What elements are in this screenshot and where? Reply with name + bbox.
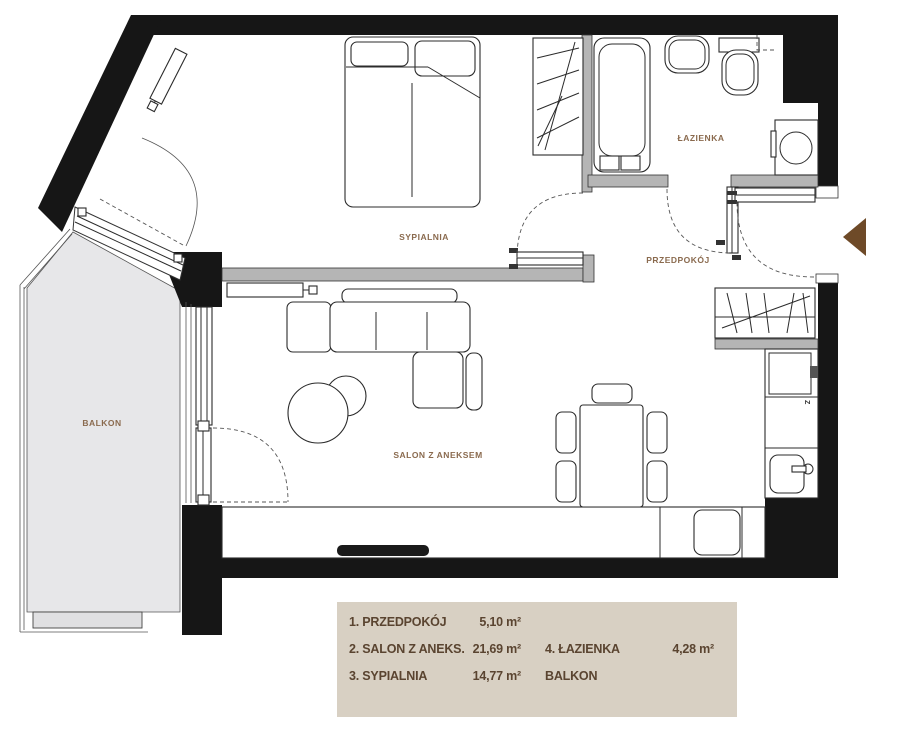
legend-item-label: 1. PRZEDPOKÓJ — [349, 613, 446, 631]
legend-panel: 1. PRZEDPOKÓJ 5,10 m² 2. SALON Z ANEKS. … — [337, 602, 737, 717]
sofa-module — [287, 302, 331, 352]
balcony — [20, 229, 180, 632]
door-swing-arc — [213, 428, 288, 502]
door-stop — [509, 264, 518, 269]
entrance-door — [727, 188, 815, 277]
door-stop — [727, 191, 737, 195]
wall-right-upper — [818, 35, 838, 197]
door-swing-arc — [737, 202, 814, 277]
bedroom-wardrobe — [533, 38, 583, 155]
dining-chair — [556, 461, 576, 502]
entrance-jamb-top — [816, 186, 838, 198]
wall-bedroom-door-jamb — [583, 255, 594, 282]
sofa-armrest — [466, 353, 482, 410]
door-stop — [732, 255, 741, 260]
door-hinge-block — [78, 208, 86, 216]
washbasin — [665, 36, 709, 73]
dining-set — [556, 384, 667, 507]
dining-chair — [647, 461, 667, 502]
radiator — [227, 283, 317, 297]
dining-table — [580, 405, 643, 507]
wall-hall-kitchen — [715, 339, 818, 349]
bedroom-door — [509, 193, 583, 269]
door-hinge-block — [174, 254, 182, 262]
dining-chair — [647, 412, 667, 453]
media-sideboard — [222, 507, 765, 558]
bathroom-door — [667, 187, 741, 260]
legend-item-label: BALKON — [545, 667, 597, 685]
coffee-table-large — [288, 383, 348, 443]
dining-chair — [556, 412, 576, 453]
pillow — [351, 42, 408, 66]
door-hinge-block — [198, 495, 209, 505]
door-stop — [509, 248, 518, 253]
entrance-arrow-icon — [843, 218, 866, 256]
cooktop — [694, 510, 740, 555]
floor-plan: Z SYPIALNIA SALON Z ANEKSEM ŁAZIENKA PRZ… — [0, 0, 902, 735]
bathtub — [594, 38, 650, 172]
cabinet-handle — [810, 366, 818, 378]
sofa-backrest — [342, 289, 457, 303]
hallway-wardrobe — [715, 288, 815, 338]
toilet — [719, 38, 759, 95]
living-room — [222, 283, 765, 558]
kitchen-counter: Z — [765, 349, 818, 498]
entrance-jamb-bottom — [816, 274, 838, 283]
pillow — [415, 41, 475, 76]
wall-bottom — [222, 558, 838, 578]
room-label-living: SALON Z ANEKSEM — [393, 450, 482, 460]
legend-item-label: 4. ŁAZIENKA — [545, 640, 620, 658]
legend-item-area: 5,10 m² — [445, 613, 521, 631]
legend-item-area: 4,28 m² — [637, 640, 714, 658]
wall-bathroom-hall-left — [588, 175, 668, 187]
tv — [337, 545, 429, 556]
room-label-bathroom: ŁAZIENKA — [678, 133, 725, 143]
bottom-counter — [222, 507, 765, 558]
door-stop — [716, 240, 725, 245]
door-hinge-block — [198, 421, 209, 431]
window — [196, 307, 212, 425]
wall-living-bedroom — [222, 268, 583, 281]
legend-item-area: 21,69 m² — [445, 640, 521, 658]
sofa-seat — [330, 302, 470, 352]
diagonal-radiator — [145, 48, 187, 113]
room-label-bedroom: SYPIALNIA — [399, 232, 449, 242]
wall-west-lower-block — [182, 505, 222, 635]
legend-item-label: 3. SYPIALNIA — [349, 667, 427, 685]
sofa-chaise — [413, 352, 463, 408]
legend-item-area: 14,77 m² — [445, 667, 521, 685]
wall-bathroom-hall-right — [731, 175, 818, 187]
room-label-hallway: PRZEDPOKÓJ — [646, 254, 710, 265]
door-stop — [727, 200, 737, 204]
balcony-planter — [33, 612, 142, 628]
bedroom — [145, 37, 583, 269]
door-swing-arc — [142, 138, 197, 246]
washing-machine — [771, 120, 818, 175]
fridge-marker: Z — [803, 400, 810, 405]
door-swing-arc — [517, 193, 583, 258]
living-west-window — [186, 302, 288, 505]
room-label-balcony: BALKON — [82, 418, 121, 428]
dining-chair — [592, 384, 632, 403]
wall-top — [131, 15, 800, 35]
